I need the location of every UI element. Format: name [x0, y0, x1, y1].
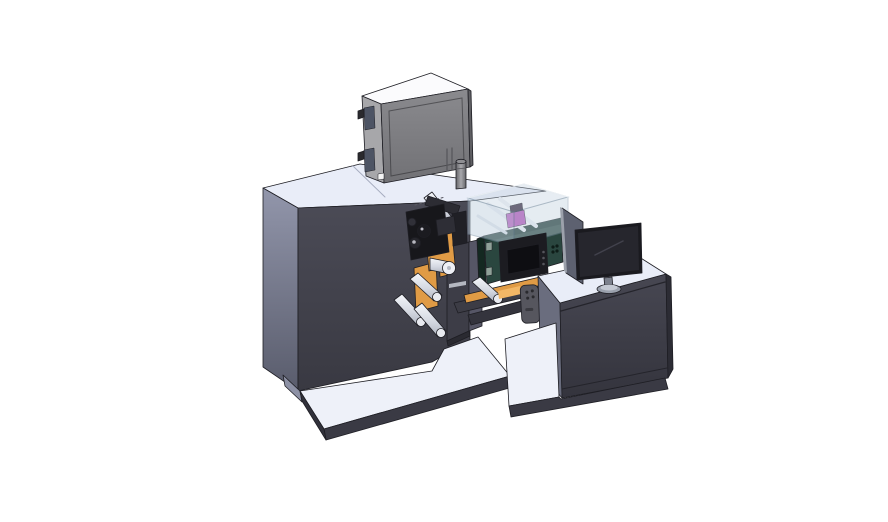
engine-vent-dot-3 — [551, 250, 554, 253]
engine-fitting-lower — [486, 267, 492, 276]
printhead-hub-dot-1 — [421, 228, 424, 231]
box-window-lower — [364, 148, 375, 172]
engine-vent-dot-2 — [555, 244, 558, 247]
guide-roller-2-hub — [447, 266, 451, 270]
printhead-hub-dot-2 — [412, 240, 416, 244]
vent-cylinder — [456, 159, 466, 189]
printhead-sub-block — [436, 216, 456, 236]
box-hinge-lower — [358, 151, 364, 161]
printhead-pulley-upper — [408, 218, 416, 226]
pendant-slot — [525, 308, 533, 311]
monitor-screen — [578, 226, 639, 277]
vent-cylinder-top — [456, 159, 466, 163]
box-hinge-upper — [358, 109, 364, 119]
hmi-button-3 — [542, 263, 545, 266]
hmi-panel — [499, 233, 548, 282]
box-window-upper — [364, 106, 375, 130]
engine-fitting-upper — [486, 242, 492, 251]
machine-render — [0, 0, 888, 522]
engine-vent-dot-4 — [555, 249, 558, 252]
monitor-base-top — [601, 285, 618, 291]
desk-base-top-wedge — [505, 323, 559, 406]
pendant-body — [520, 285, 540, 324]
guide-roller-4-cap — [437, 329, 446, 338]
box-latch-square — [378, 173, 384, 180]
cabinet-left-face — [263, 188, 298, 391]
hmi-button-2 — [542, 257, 545, 260]
hmi-button-1 — [542, 251, 545, 254]
guide-roller-3-cap — [433, 293, 442, 302]
vent-cylinder-body — [456, 161, 466, 189]
cad-viewport — [0, 0, 888, 522]
engine-vent-dot-1 — [551, 245, 554, 248]
printhead-pulley-large — [418, 225, 431, 238]
pendant-remote — [520, 285, 540, 324]
